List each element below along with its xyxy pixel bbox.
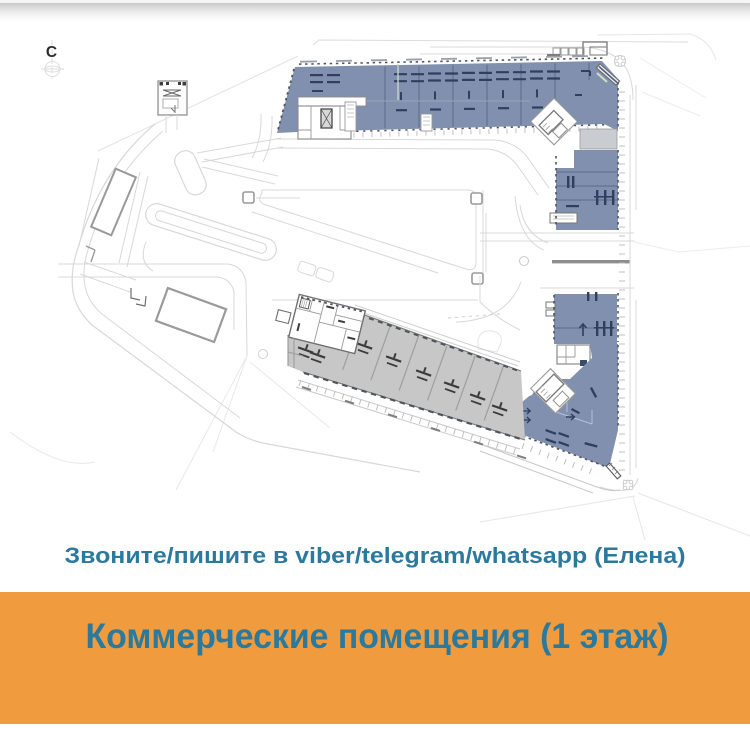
svg-text:Звоните/пишите в viber/telegra: Звоните/пишите в viber/telegram/whatsapp…	[65, 543, 686, 568]
svg-text:Коммерческие помещения (1 этаж: Коммерческие помещения (1 этаж)	[86, 617, 669, 656]
